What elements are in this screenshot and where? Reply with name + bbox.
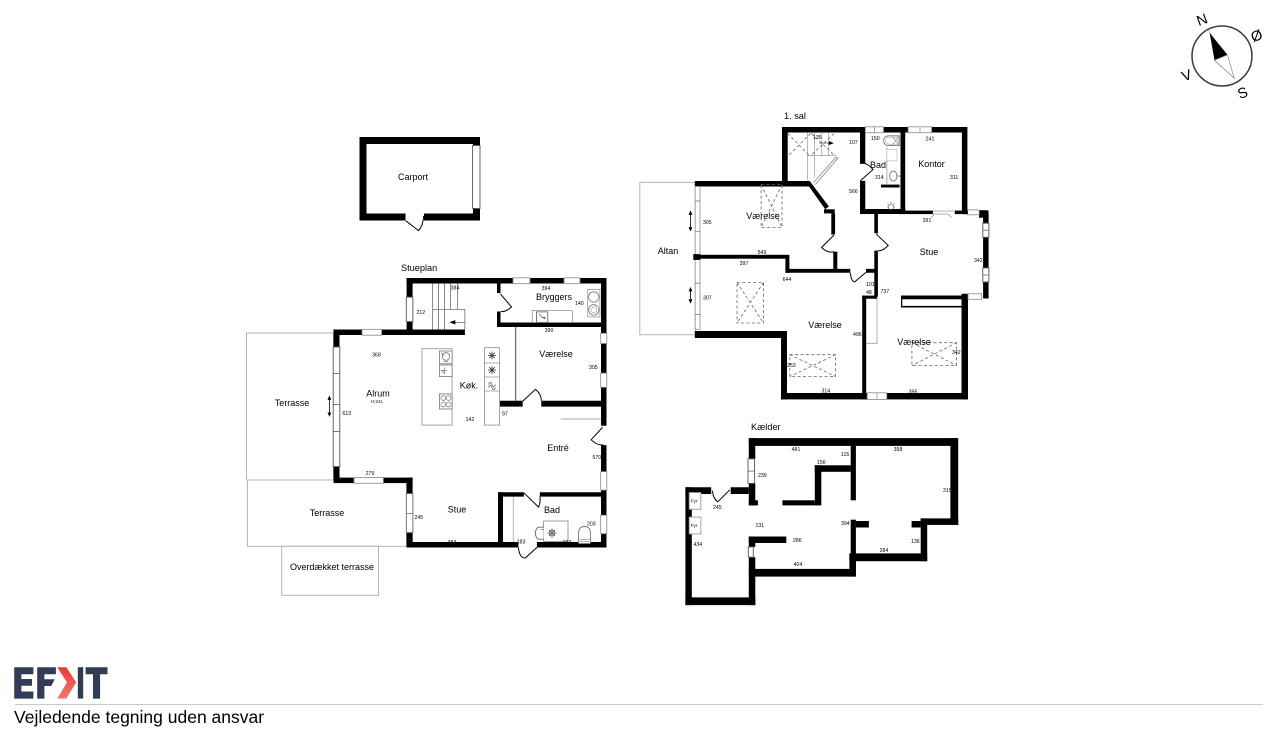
- svg-text:644: 644: [783, 277, 792, 283]
- svg-text:156: 156: [817, 460, 826, 466]
- svg-text:737: 737: [881, 289, 890, 295]
- svg-text:311: 311: [950, 175, 958, 181]
- svg-text:115: 115: [841, 452, 849, 458]
- svg-text:Stueplan: Stueplan: [401, 263, 437, 273]
- svg-text:241: 241: [926, 137, 935, 143]
- svg-text:Terrasse: Terrasse: [310, 508, 345, 518]
- svg-text:384: 384: [451, 286, 460, 292]
- svg-text:48: 48: [866, 290, 872, 296]
- svg-text:342: 342: [974, 258, 983, 264]
- svg-text:404: 404: [794, 562, 803, 568]
- svg-text:107: 107: [849, 140, 858, 146]
- svg-text:549: 549: [758, 250, 767, 256]
- svg-text:H:241: H:241: [371, 399, 383, 404]
- svg-text:Alrum: Alrum: [366, 389, 390, 399]
- svg-text:Bad: Bad: [870, 160, 886, 170]
- svg-text:101: 101: [866, 282, 875, 288]
- svg-text:368: 368: [372, 353, 381, 359]
- svg-text:314: 314: [821, 389, 830, 395]
- svg-text:394: 394: [542, 286, 551, 292]
- svg-text:Værelse: Værelse: [897, 337, 931, 347]
- svg-text:613: 613: [343, 411, 352, 417]
- svg-text:Værelse: Værelse: [539, 349, 573, 359]
- svg-text:203: 203: [587, 522, 596, 528]
- svg-text:Stue: Stue: [920, 247, 939, 257]
- svg-text:135: 135: [813, 135, 822, 141]
- svg-text:305: 305: [703, 220, 712, 226]
- svg-text:397: 397: [740, 261, 749, 267]
- svg-text:434: 434: [694, 542, 703, 548]
- svg-text:212: 212: [417, 310, 426, 316]
- svg-text:Værelse: Værelse: [808, 320, 842, 330]
- svg-text:97: 97: [502, 412, 508, 418]
- svg-text:Stue: Stue: [448, 505, 467, 515]
- svg-text:Altan: Altan: [658, 246, 679, 256]
- svg-text:391: 391: [923, 218, 932, 224]
- svg-text:Bryggers: Bryggers: [536, 292, 573, 302]
- svg-text:390: 390: [545, 328, 554, 334]
- svg-text:394: 394: [841, 521, 850, 527]
- svg-text:150: 150: [871, 136, 880, 142]
- svg-text:Bad: Bad: [544, 505, 560, 515]
- svg-text:140: 140: [575, 301, 584, 307]
- svg-text:395: 395: [909, 390, 918, 396]
- svg-text:Vejledende tegning uden ansvar: Vejledende tegning uden ansvar: [14, 707, 264, 727]
- svg-text:Værelse: Værelse: [746, 211, 780, 221]
- svg-text:398: 398: [894, 447, 903, 453]
- svg-text:Entré: Entré: [547, 443, 569, 453]
- svg-text:496: 496: [853, 332, 862, 338]
- svg-text:307: 307: [703, 296, 712, 302]
- svg-text:Kontor: Kontor: [918, 159, 945, 169]
- svg-text:1. sal: 1. sal: [784, 111, 806, 121]
- svg-text:239: 239: [758, 473, 767, 479]
- svg-text:Kælder: Kælder: [751, 422, 781, 432]
- svg-text:383: 383: [448, 540, 457, 546]
- svg-text:136: 136: [911, 539, 920, 545]
- svg-text:Overdækket terrasse: Overdækket terrasse: [290, 562, 374, 572]
- svg-text:342: 342: [952, 350, 961, 356]
- svg-text:Terrasse: Terrasse: [275, 398, 310, 408]
- svg-text:Køk.: Køk.: [460, 381, 479, 391]
- svg-text:Fyr: Fyr: [691, 523, 698, 528]
- svg-text:183: 183: [517, 540, 526, 546]
- svg-text:Carport: Carport: [398, 172, 429, 182]
- svg-text:193: 193: [563, 540, 572, 546]
- svg-text:142: 142: [466, 417, 475, 423]
- svg-text:279: 279: [366, 471, 375, 477]
- svg-text:286: 286: [793, 538, 802, 544]
- svg-text:Fyr: Fyr: [691, 499, 698, 504]
- svg-text:253: 253: [787, 363, 796, 369]
- svg-text:481: 481: [792, 447, 801, 453]
- svg-text:245: 245: [415, 515, 424, 521]
- svg-text:570: 570: [593, 455, 602, 461]
- svg-text:245: 245: [713, 505, 722, 511]
- svg-text:305: 305: [589, 365, 598, 371]
- svg-text:566: 566: [849, 189, 858, 195]
- svg-text:131: 131: [756, 523, 765, 529]
- svg-text:284: 284: [880, 548, 889, 554]
- svg-text:314: 314: [875, 175, 884, 181]
- svg-text:315: 315: [943, 488, 952, 494]
